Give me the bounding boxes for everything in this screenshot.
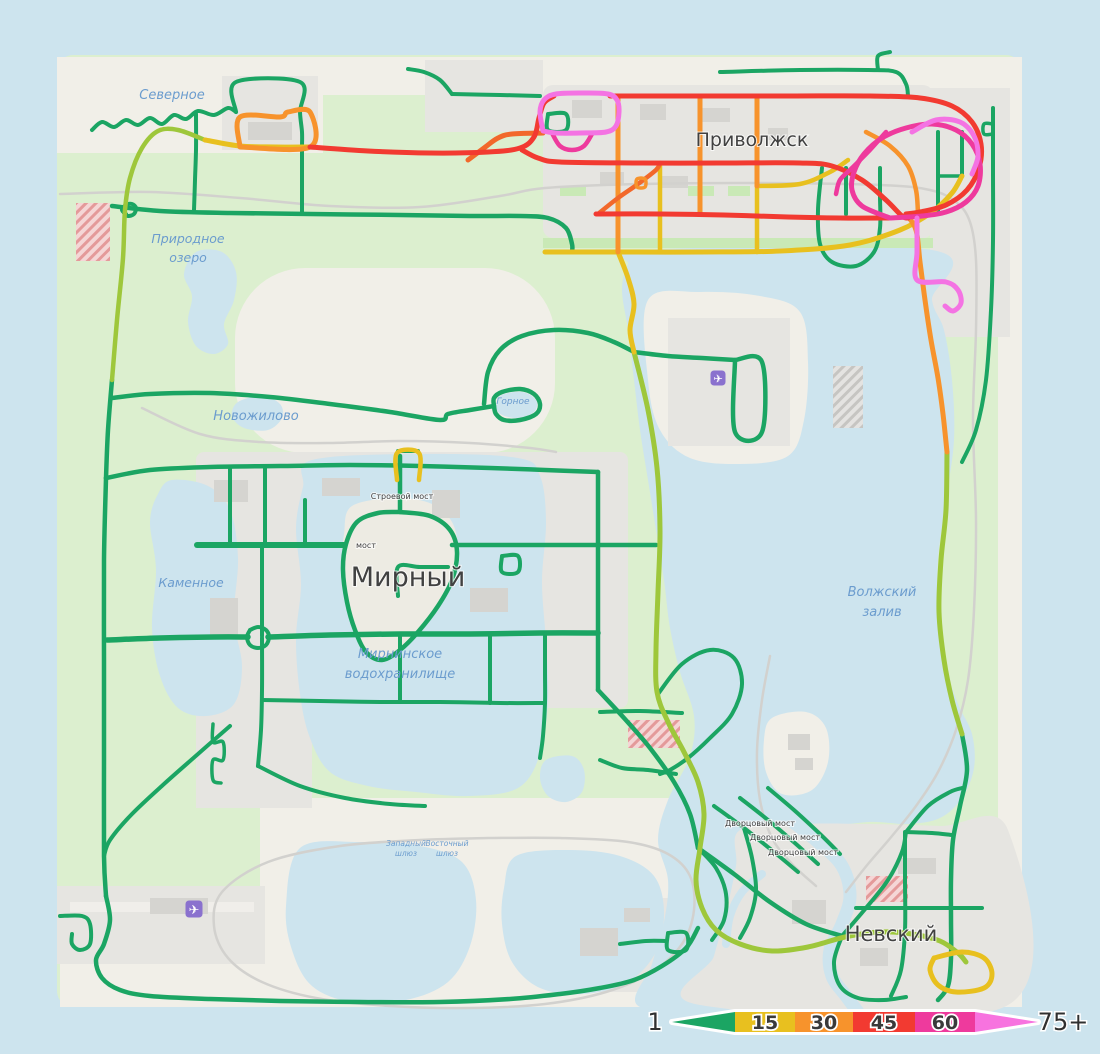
land-zone [235,268,555,453]
building [640,104,666,120]
legend-min-label: 1 [647,1008,662,1036]
land-zone [196,700,312,808]
road-segment [600,711,682,713]
airport-southwest-icon[interactable]: ✈ [186,901,203,919]
legend-tick: 45 [871,1012,897,1034]
label-most: мост [356,541,376,550]
label-city-mirny: Мирный [351,562,466,593]
lake-sw-1 [286,841,477,1003]
label-dvortsovy-most-1: Дворцовый мост [725,819,795,828]
legend-tick: 15 [752,1012,778,1034]
label-dvortsovy-most-3: Дворцовый мост [768,848,838,857]
map-canvas[interactable]: СеверноеПриродноеозероНовожиловоГорноеКа… [0,0,1100,1054]
airport-island-icon[interactable]: ✈ [711,371,726,386]
park-patch [728,186,750,196]
label-stroyevoy-most: Строевой мост [371,492,434,501]
label-city-privolzhsk: Приволжск [696,129,809,151]
building [788,734,810,750]
building [248,122,292,140]
building [470,588,508,612]
lake-sw-2 [501,850,664,994]
legend-max-label: 75+ [1038,1008,1089,1036]
legend-tick: 60 [932,1012,958,1034]
building [860,948,888,966]
pier-zone [833,366,863,428]
building [580,928,618,956]
label-gornoye: Горное [496,397,530,407]
label-city-nevsky: Невский [845,922,938,946]
building [432,490,460,518]
building [660,176,688,188]
label-severnoye: Северное [139,88,204,103]
label-kamennoye: Каменное [158,575,224,590]
legend-tick: 30 [811,1012,837,1034]
building [700,108,730,122]
island-zone [668,318,790,446]
building [210,598,238,636]
building [572,100,602,118]
svg-text:✈: ✈ [713,373,722,386]
svg-text:✈: ✈ [189,903,200,918]
road-segment [194,114,196,210]
building [795,758,813,770]
building [624,908,650,922]
road-segment [452,94,540,96]
building [322,478,360,496]
label-dvortsovy-most-2: Дворцовый мост [750,833,820,842]
restricted-zone [76,203,110,261]
label-novozhilovo: Новожилово [213,409,298,424]
road-segment [104,478,106,896]
traffic-map-view[interactable]: СеверноеПриродноеозероНовожиловоГорноеКа… [0,0,1100,1054]
road-segment [107,637,248,640]
